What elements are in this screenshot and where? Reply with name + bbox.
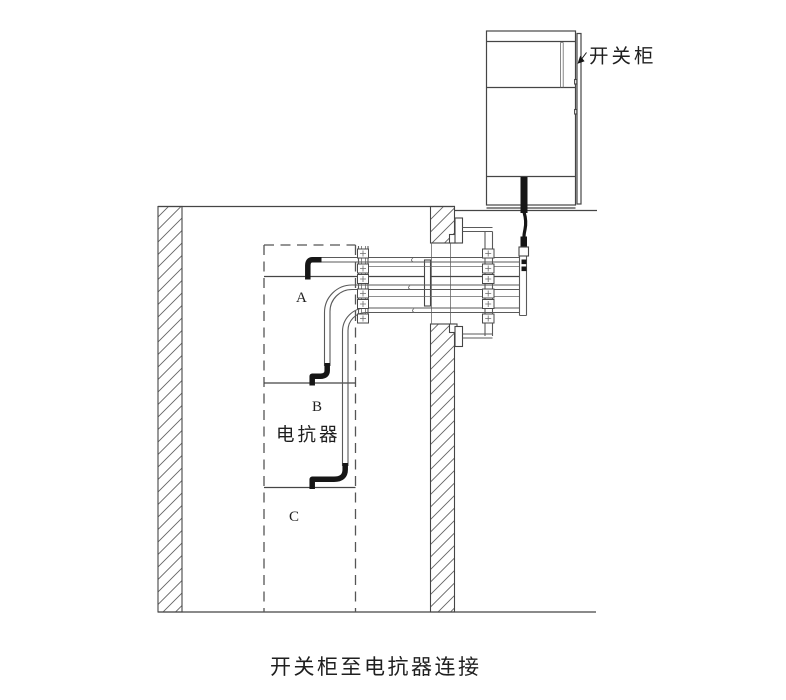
busbar-tubes bbox=[318, 256, 527, 466]
drawing-caption: 开关柜至电抗器连接 bbox=[270, 655, 482, 679]
cabinet-label: 开关柜 bbox=[589, 46, 657, 68]
engineering-drawing: A B C 电抗器 开关柜 开关柜至电抗器连接 bbox=[0, 0, 786, 700]
building-structure bbox=[158, 207, 597, 613]
panel-hinge-bottom bbox=[575, 110, 577, 115]
left-wall bbox=[158, 207, 182, 613]
cable-connector-box bbox=[519, 247, 529, 256]
busbar-end-bar bbox=[520, 256, 527, 316]
cabinet-body bbox=[487, 31, 576, 205]
phase-b-label: B bbox=[312, 399, 322, 415]
switchgear-cabinet bbox=[487, 31, 582, 208]
cabinet-inner-frame bbox=[561, 43, 564, 88]
phase-c-label: C bbox=[289, 509, 299, 525]
power-cable bbox=[519, 177, 529, 271]
cable-thin-section bbox=[524, 212, 526, 237]
terminal-elbows bbox=[308, 260, 345, 489]
right-wall-lower bbox=[431, 324, 455, 612]
cable-lug bbox=[521, 237, 528, 248]
phase-c-elbow bbox=[312, 463, 345, 489]
connector-clamp-2 bbox=[522, 267, 527, 272]
bracket-bottom bbox=[455, 327, 463, 347]
phase-a-label: A bbox=[296, 290, 307, 306]
connector-clamp-1 bbox=[522, 260, 527, 265]
reactor-label: 电抗器 bbox=[276, 425, 341, 446]
support-column-right bbox=[483, 232, 495, 337]
bracket-top bbox=[455, 218, 463, 243]
busbar-intermediate-lines bbox=[361, 267, 520, 297]
cabinet-leader bbox=[578, 53, 587, 64]
phase-b-elbow bbox=[312, 363, 327, 386]
panel-hinge-top bbox=[575, 80, 577, 85]
cable-thick-section bbox=[521, 177, 528, 213]
drawing-canvas: A B C 电抗器 开关柜 开关柜至电抗器连接 bbox=[0, 0, 786, 700]
leader-line bbox=[582, 53, 587, 59]
